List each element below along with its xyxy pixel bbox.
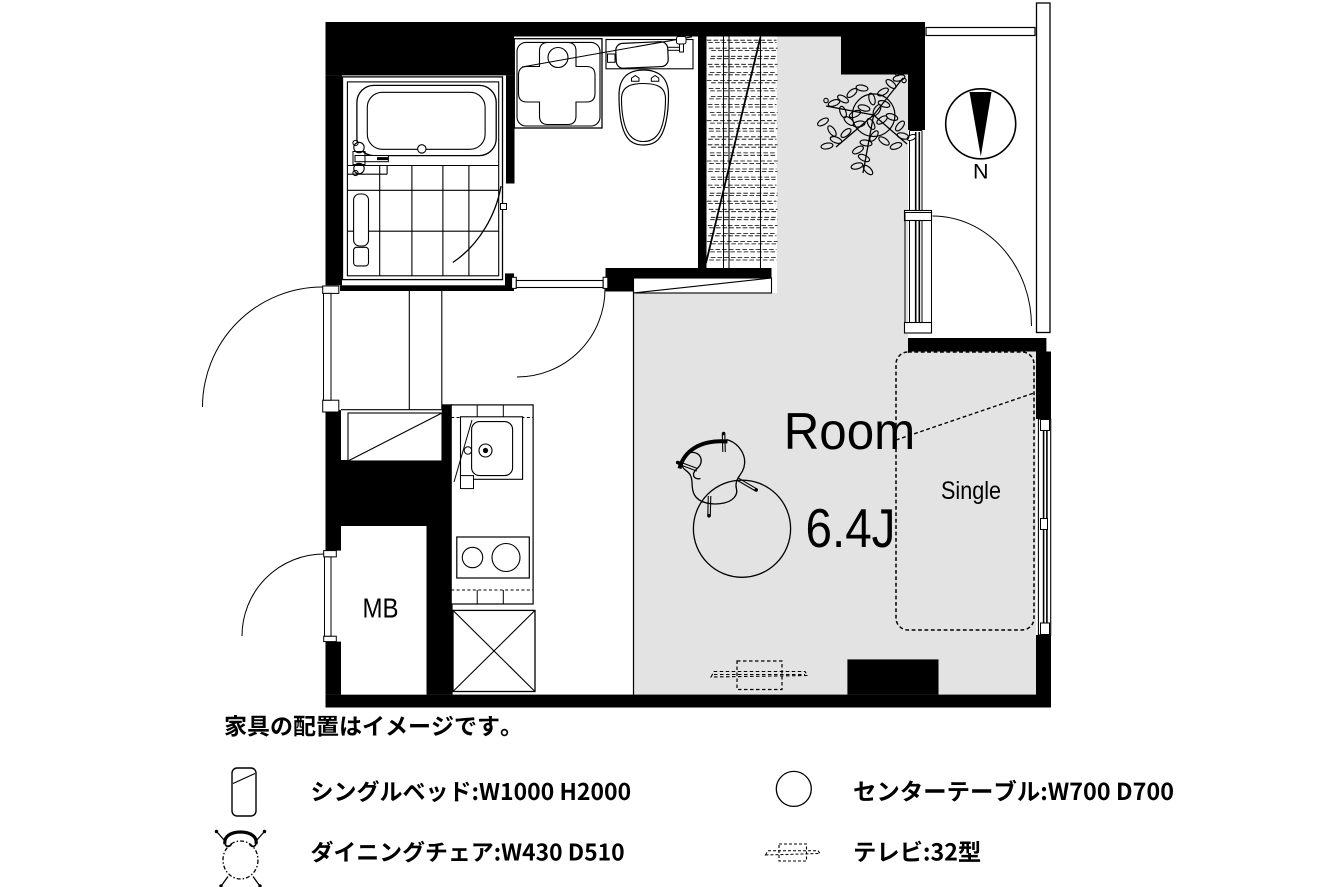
svg-text:Single: Single [941, 477, 1001, 505]
svg-text:Room: Room [784, 403, 916, 461]
svg-text:MB: MB [363, 593, 399, 624]
svg-text:N: N [973, 159, 989, 183]
svg-text:6.4J: 6.4J [806, 497, 896, 559]
